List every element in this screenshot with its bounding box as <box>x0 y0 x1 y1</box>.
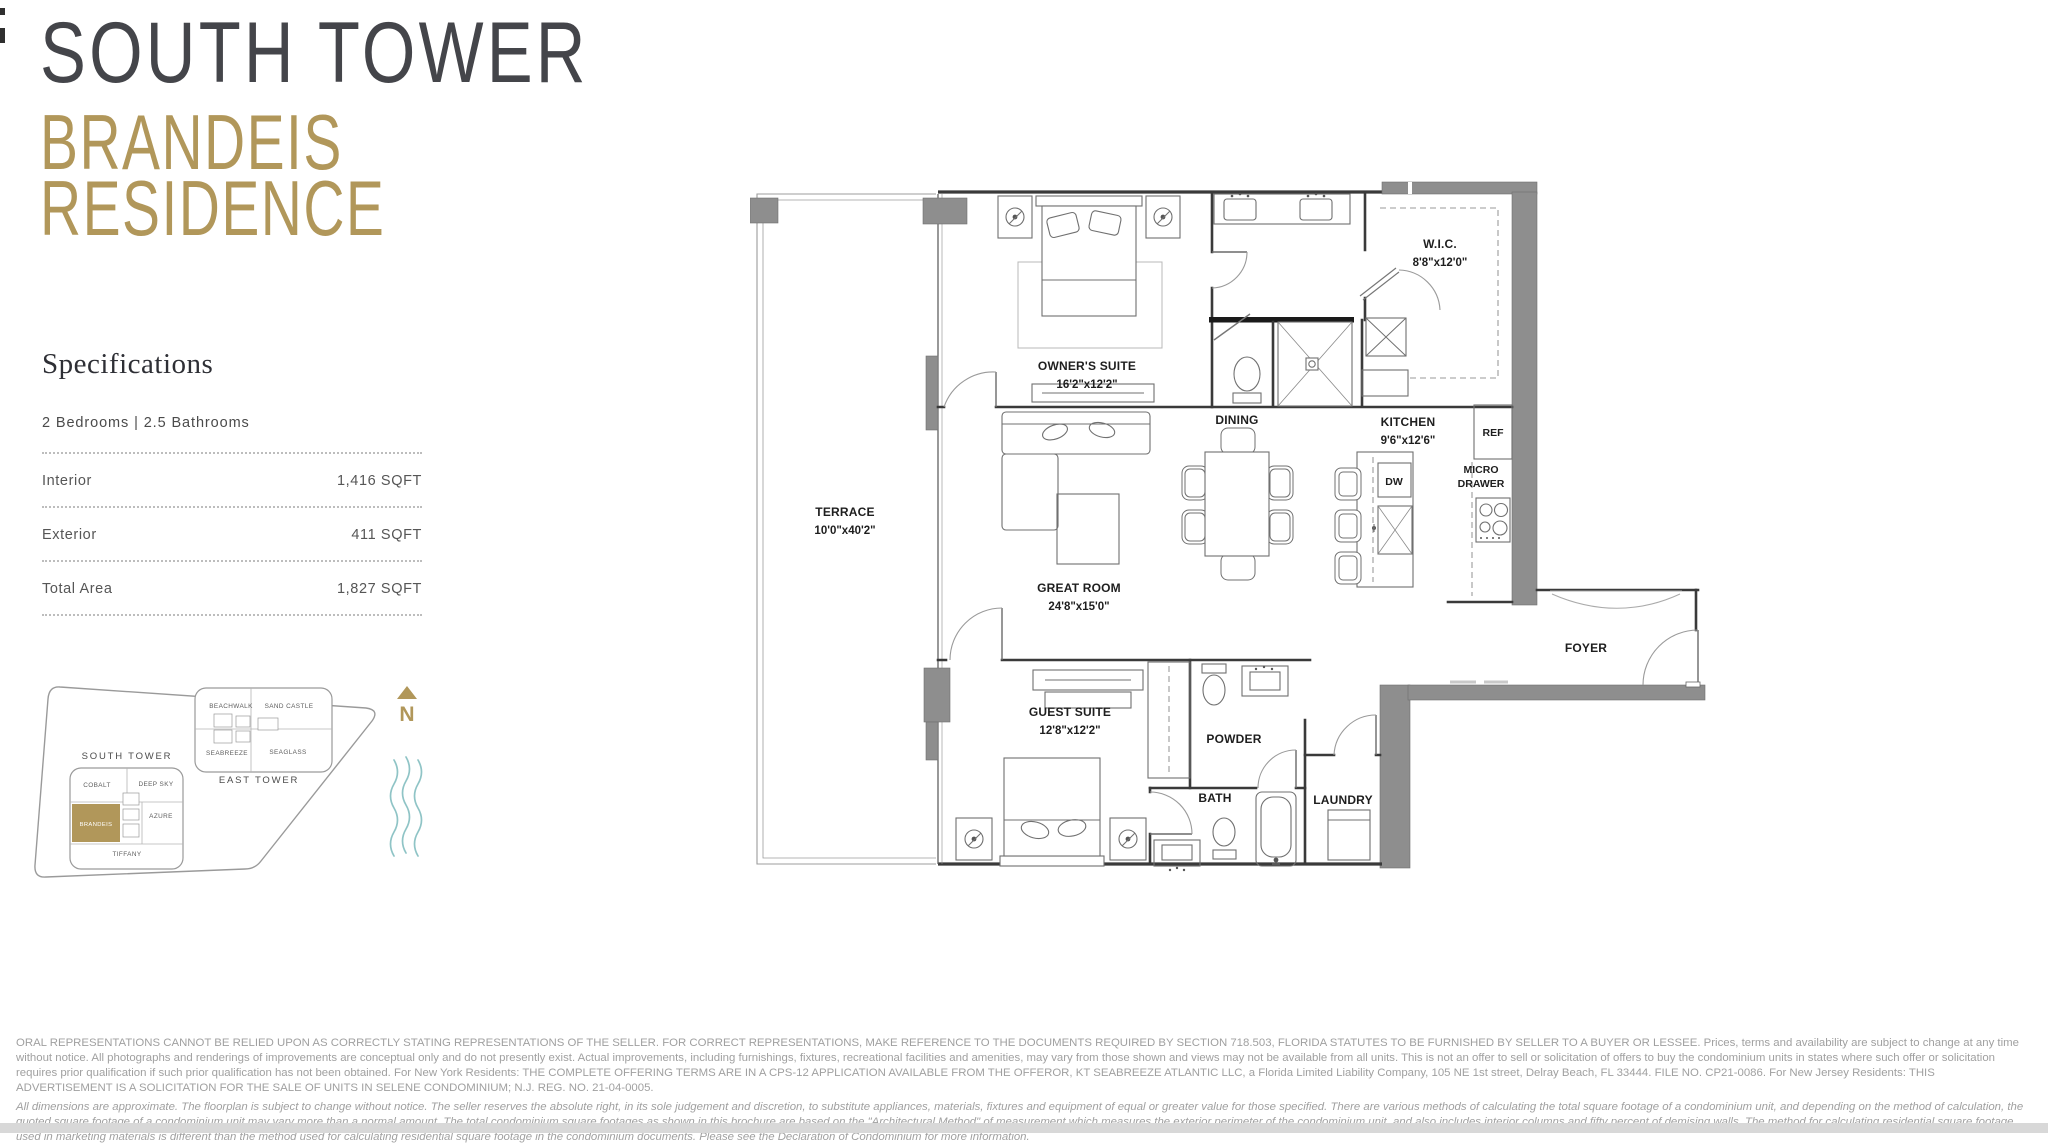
foyer-closet-doors <box>1552 594 1680 608</box>
room-dims-guest-suite: 12'8"x12'2" <box>1039 725 1100 737</box>
room-label-dining: DINING <box>1215 413 1258 427</box>
bed-bath-summary: 2 Bedrooms | 2.5 Bathrooms <box>42 415 422 431</box>
brand-block: SOUTH TOWER BRANDEIS RESIDENCE <box>40 10 726 240</box>
brochure-page: { "header": { "line1": "SOUTH TOWER", "l… <box>0 0 2048 1133</box>
floor-plan: TERRACE 10'0"x40'2" OWNER'S SUITE 16'2"x… <box>750 180 1715 880</box>
spec-value: 411 SQFT <box>351 527 422 543</box>
spec-label: Total Area <box>42 581 113 597</box>
unit-label-sand-castle: SAND CASTLE <box>265 703 314 710</box>
spec-value: 1,827 SQFT <box>337 581 422 597</box>
owner-bath-fixtures <box>1214 193 1352 406</box>
water-waves-icon <box>391 757 422 856</box>
room-label-laundry: LAUNDRY <box>1313 793 1373 807</box>
washer <box>1328 810 1370 860</box>
appliance-label-micro: MICRO <box>1464 464 1499 476</box>
north-label: N <box>399 703 414 726</box>
spec-label: Exterior <box>42 527 97 543</box>
unit-label-deep-sky: DEEP SKY <box>138 781 173 788</box>
room-dims-kitchen: 9'6"x12'6" <box>1381 435 1436 447</box>
appliance-label-dw: DW <box>1385 476 1403 488</box>
legal-paragraph-1: ORAL REPRESENTATIONS CANNOT BE RELIED UP… <box>16 1036 2030 1096</box>
unit-label-azure: AZURE <box>149 813 173 820</box>
room-label-powder: POWDER <box>1206 732 1261 746</box>
specifications-title: Specifications <box>42 348 422 381</box>
unit-label-seaglass: SEAGLASS <box>269 749 306 756</box>
east-tower-label: EAST TOWER <box>219 775 299 786</box>
unit-label-seabreeze: SEABREEZE <box>206 750 248 757</box>
south-tower-label: SOUTH TOWER <box>82 751 173 762</box>
wic-pocket-door <box>1360 268 1399 300</box>
room-label-foyer: FOYER <box>1565 641 1607 655</box>
unit-label-tiffany: TIFFANY <box>112 851 141 858</box>
room-dims-owner-suite: 16'2"x12'2" <box>1056 379 1117 391</box>
spec-value: 1,416 SQFT <box>337 473 422 489</box>
edge-mark <box>0 8 5 15</box>
great-room-furniture <box>1002 412 1150 708</box>
room-label-bath: BATH <box>1198 791 1231 805</box>
spec-label: Interior <box>42 473 92 489</box>
unit-label-beachwalk: BEACHWALK <box>209 703 253 710</box>
edge-mark <box>0 28 5 43</box>
room-dims-terrace: 10'0"x40'2" <box>814 525 875 537</box>
laundry-fixtures <box>1328 810 1370 860</box>
unit-label-brandeis: BRANDEIS <box>80 822 113 828</box>
specifications-panel: Specifications 2 Bedrooms | 2.5 Bathroom… <box>42 348 422 616</box>
wall-notch <box>1408 182 1412 194</box>
powder-fixtures <box>1202 664 1288 705</box>
spec-row-exterior: Exterior 411 SQFT <box>42 508 422 560</box>
unit-label-cobalt: COBALT <box>83 782 111 789</box>
dining-furniture <box>1182 428 1293 580</box>
room-label-wic: W.I.C. <box>1423 237 1457 251</box>
room-label-terrace: TERRACE <box>815 505 874 519</box>
site-map: BEACHWALK SAND CASTLE SEABREEZE SEAGLASS… <box>30 672 480 907</box>
linen-closet-x <box>1366 318 1406 356</box>
spec-row-interior: Interior 1,416 SQFT <box>42 454 422 506</box>
island-sink <box>1378 506 1412 554</box>
entry-threshold <box>1686 682 1700 687</box>
south-tower-footprint: SOUTH TOWER COBALT DEEP SKY BRANDEIS AZU… <box>70 751 183 869</box>
east-tower-footprint: BEACHWALK SAND CASTLE SEABREEZE SEAGLASS… <box>195 688 332 786</box>
north-arrow-icon: N <box>397 686 417 726</box>
residence-name-line2: RESIDENCE <box>40 176 541 240</box>
spec-row-total: Total Area 1,827 SQFT <box>42 562 422 614</box>
room-label-guest-suite: GUEST SUITE <box>1029 705 1111 719</box>
room-dims-great-room: 24'8"x15'0" <box>1048 601 1109 613</box>
dotted-divider <box>42 614 422 616</box>
appliance-label-drawer: DRAWER <box>1458 478 1505 490</box>
appliance-label-ref: REF <box>1483 427 1505 439</box>
tower-title: SOUTH TOWER <box>40 10 589 96</box>
room-label-kitchen: KITCHEN <box>1381 415 1436 429</box>
bottom-edge-bar <box>0 1123 2048 1133</box>
spec-table: Interior 1,416 SQFT Exterior 411 SQFT To… <box>42 452 422 616</box>
room-label-owner-suite: OWNER'S SUITE <box>1038 359 1136 373</box>
room-label-great-room: GREAT ROOM <box>1037 581 1121 595</box>
room-dims-wic: 8'8"x12'0" <box>1413 257 1468 269</box>
